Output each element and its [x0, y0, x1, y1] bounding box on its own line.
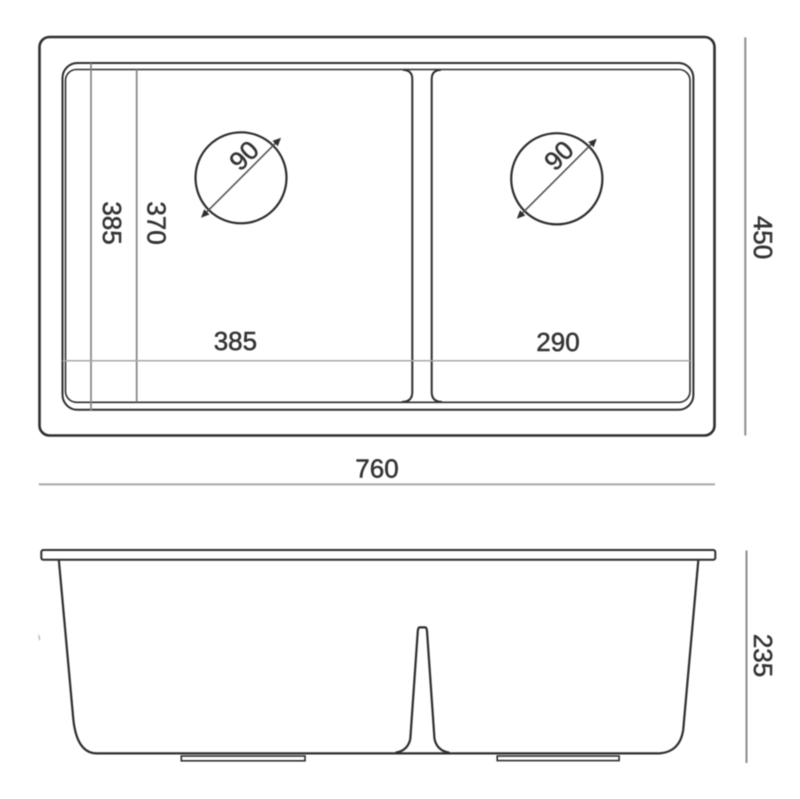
svg-text:385: 385: [97, 201, 127, 244]
svg-text:760: 760: [355, 454, 398, 484]
svg-text:235: 235: [748, 634, 778, 677]
svg-text:450: 450: [748, 216, 778, 259]
svg-text:370: 370: [142, 201, 172, 244]
svg-text:290: 290: [536, 327, 579, 357]
svg-text:385: 385: [214, 326, 257, 356]
